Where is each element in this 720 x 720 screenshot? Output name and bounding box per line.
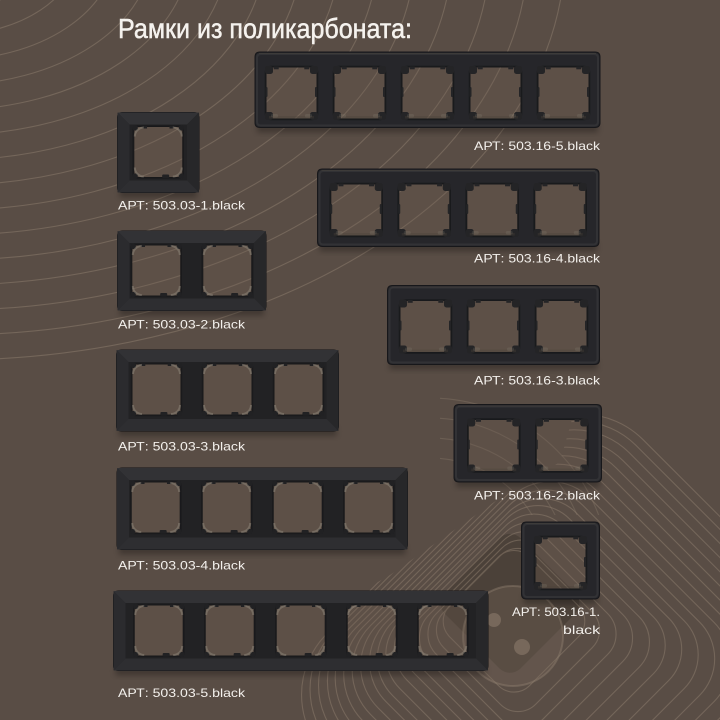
svg-text:АРТ: 503.16-4.black: АРТ: 503.16-4.black [474, 252, 601, 266]
svg-text:АРТ: 503.16-1.: АРТ: 503.16-1. [512, 605, 600, 619]
svg-text:АРТ: 503.03-4.black: АРТ: 503.03-4.black [118, 559, 246, 573]
svg-text:АРТ: 503.16-2.black: АРТ: 503.16-2.black [474, 489, 601, 503]
svg-text:АРТ: 503.03-1.black: АРТ: 503.03-1.black [118, 199, 246, 213]
svg-text:АРТ: 503.03-5.black: АРТ: 503.03-5.black [118, 686, 246, 700]
svg-text:black: black [563, 623, 601, 637]
svg-text:АРТ: 503.16-3.black: АРТ: 503.16-3.black [474, 374, 601, 388]
svg-text:АРТ: 503.03-2.black: АРТ: 503.03-2.black [118, 318, 246, 332]
svg-text:АРТ: 503.03-3.black: АРТ: 503.03-3.black [118, 440, 246, 454]
svg-text:АРТ: 503.16-5.black: АРТ: 503.16-5.black [474, 139, 601, 153]
svg-text:Рамки из поликарбоната:: Рамки из поликарбоната: [118, 13, 412, 44]
